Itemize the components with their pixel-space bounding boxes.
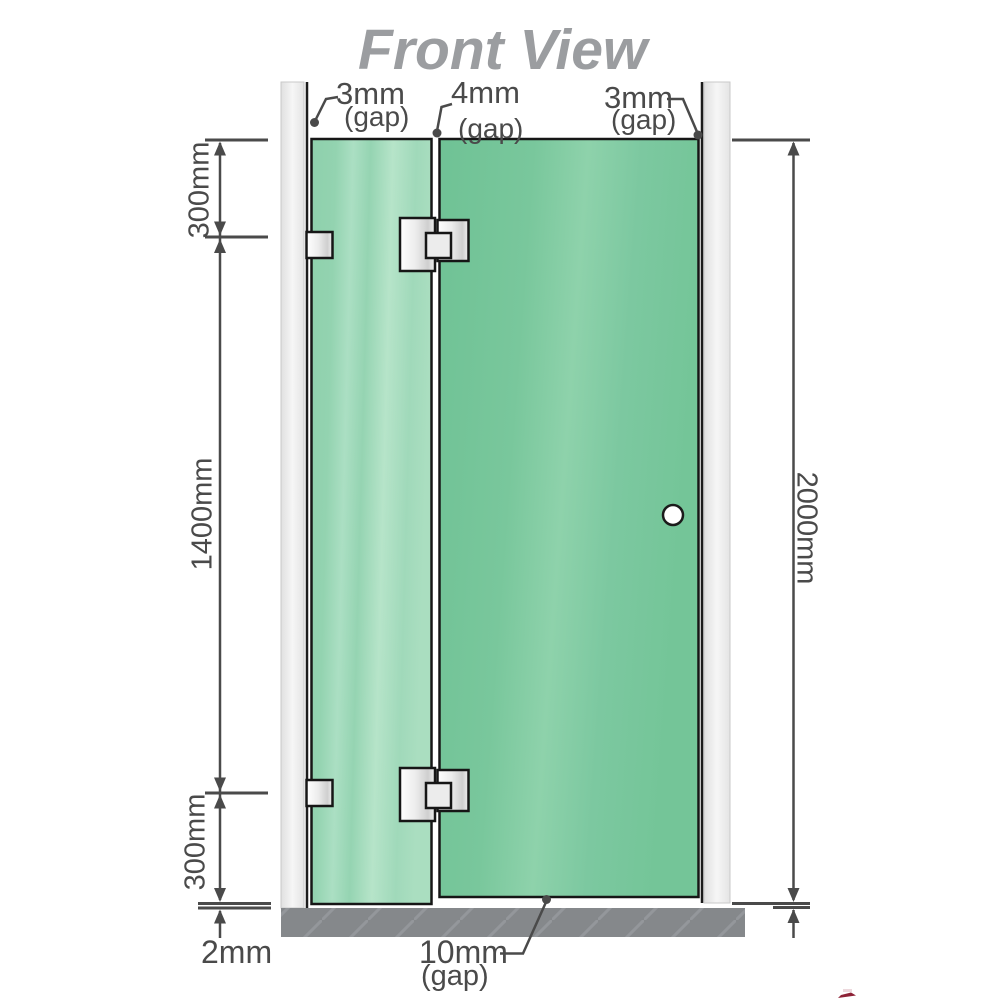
dimension-label-top-300mm: 300mm — [186, 142, 215, 239]
wall-bracket-bottom — [307, 780, 333, 806]
dimension-label-middle-1400mm: 1400mm — [189, 458, 218, 571]
arrow-down-icon — [788, 888, 800, 902]
wall-bracket-top — [307, 232, 333, 258]
gap-label-middle-value: 4mm — [451, 77, 520, 108]
red-watermark-smudge — [843, 989, 852, 992]
dimension-label-bottom-300mm: 300mm — [182, 794, 211, 891]
wall-channel-right — [704, 82, 730, 903]
gap-label-left-suffix: (gap) — [344, 103, 409, 131]
page-title: Front View — [358, 22, 647, 79]
diagram-canvas — [0, 0, 1000, 1000]
dimension-label-2mm: 2mm — [201, 936, 272, 968]
gap-label-bottom-suffix: (gap) — [421, 962, 489, 991]
door-knob — [663, 505, 683, 525]
arrow-down-icon — [214, 888, 226, 902]
arrow-down-icon — [214, 778, 226, 792]
red-watermark-stroke — [838, 993, 856, 999]
leader-dot — [694, 131, 703, 140]
arrow-up-icon — [788, 142, 800, 156]
arrow-up-icon — [214, 795, 226, 809]
red-watermark — [838, 989, 856, 998]
glass-panel-door — [440, 139, 699, 897]
arrow-up-icon — [214, 142, 226, 156]
leader-dot — [310, 118, 319, 127]
gap-label-right-suffix: (gap) — [611, 106, 676, 134]
hinge-top-knuckle — [426, 233, 451, 258]
floor-base — [281, 908, 745, 937]
dimension-label-2000mm: 2000mm — [792, 472, 821, 585]
leader-dot — [433, 129, 442, 138]
leader-gap-left — [315, 97, 338, 121]
front-view-diagram: Front View 3mm (gap) 4mm (gap) 3mm (gap)… — [0, 0, 1000, 1000]
arrow-down-icon — [214, 222, 226, 236]
arrow-up-icon — [788, 909, 800, 923]
hinge-bottom-knuckle — [426, 783, 451, 808]
arrow-up-icon — [214, 910, 226, 924]
wall-channel-left — [281, 82, 304, 908]
arrow-up-icon — [214, 239, 226, 253]
gap-label-middle-suffix: (gap) — [458, 115, 523, 143]
leader-dot — [542, 895, 551, 904]
leader-gap-middle — [437, 104, 452, 131]
